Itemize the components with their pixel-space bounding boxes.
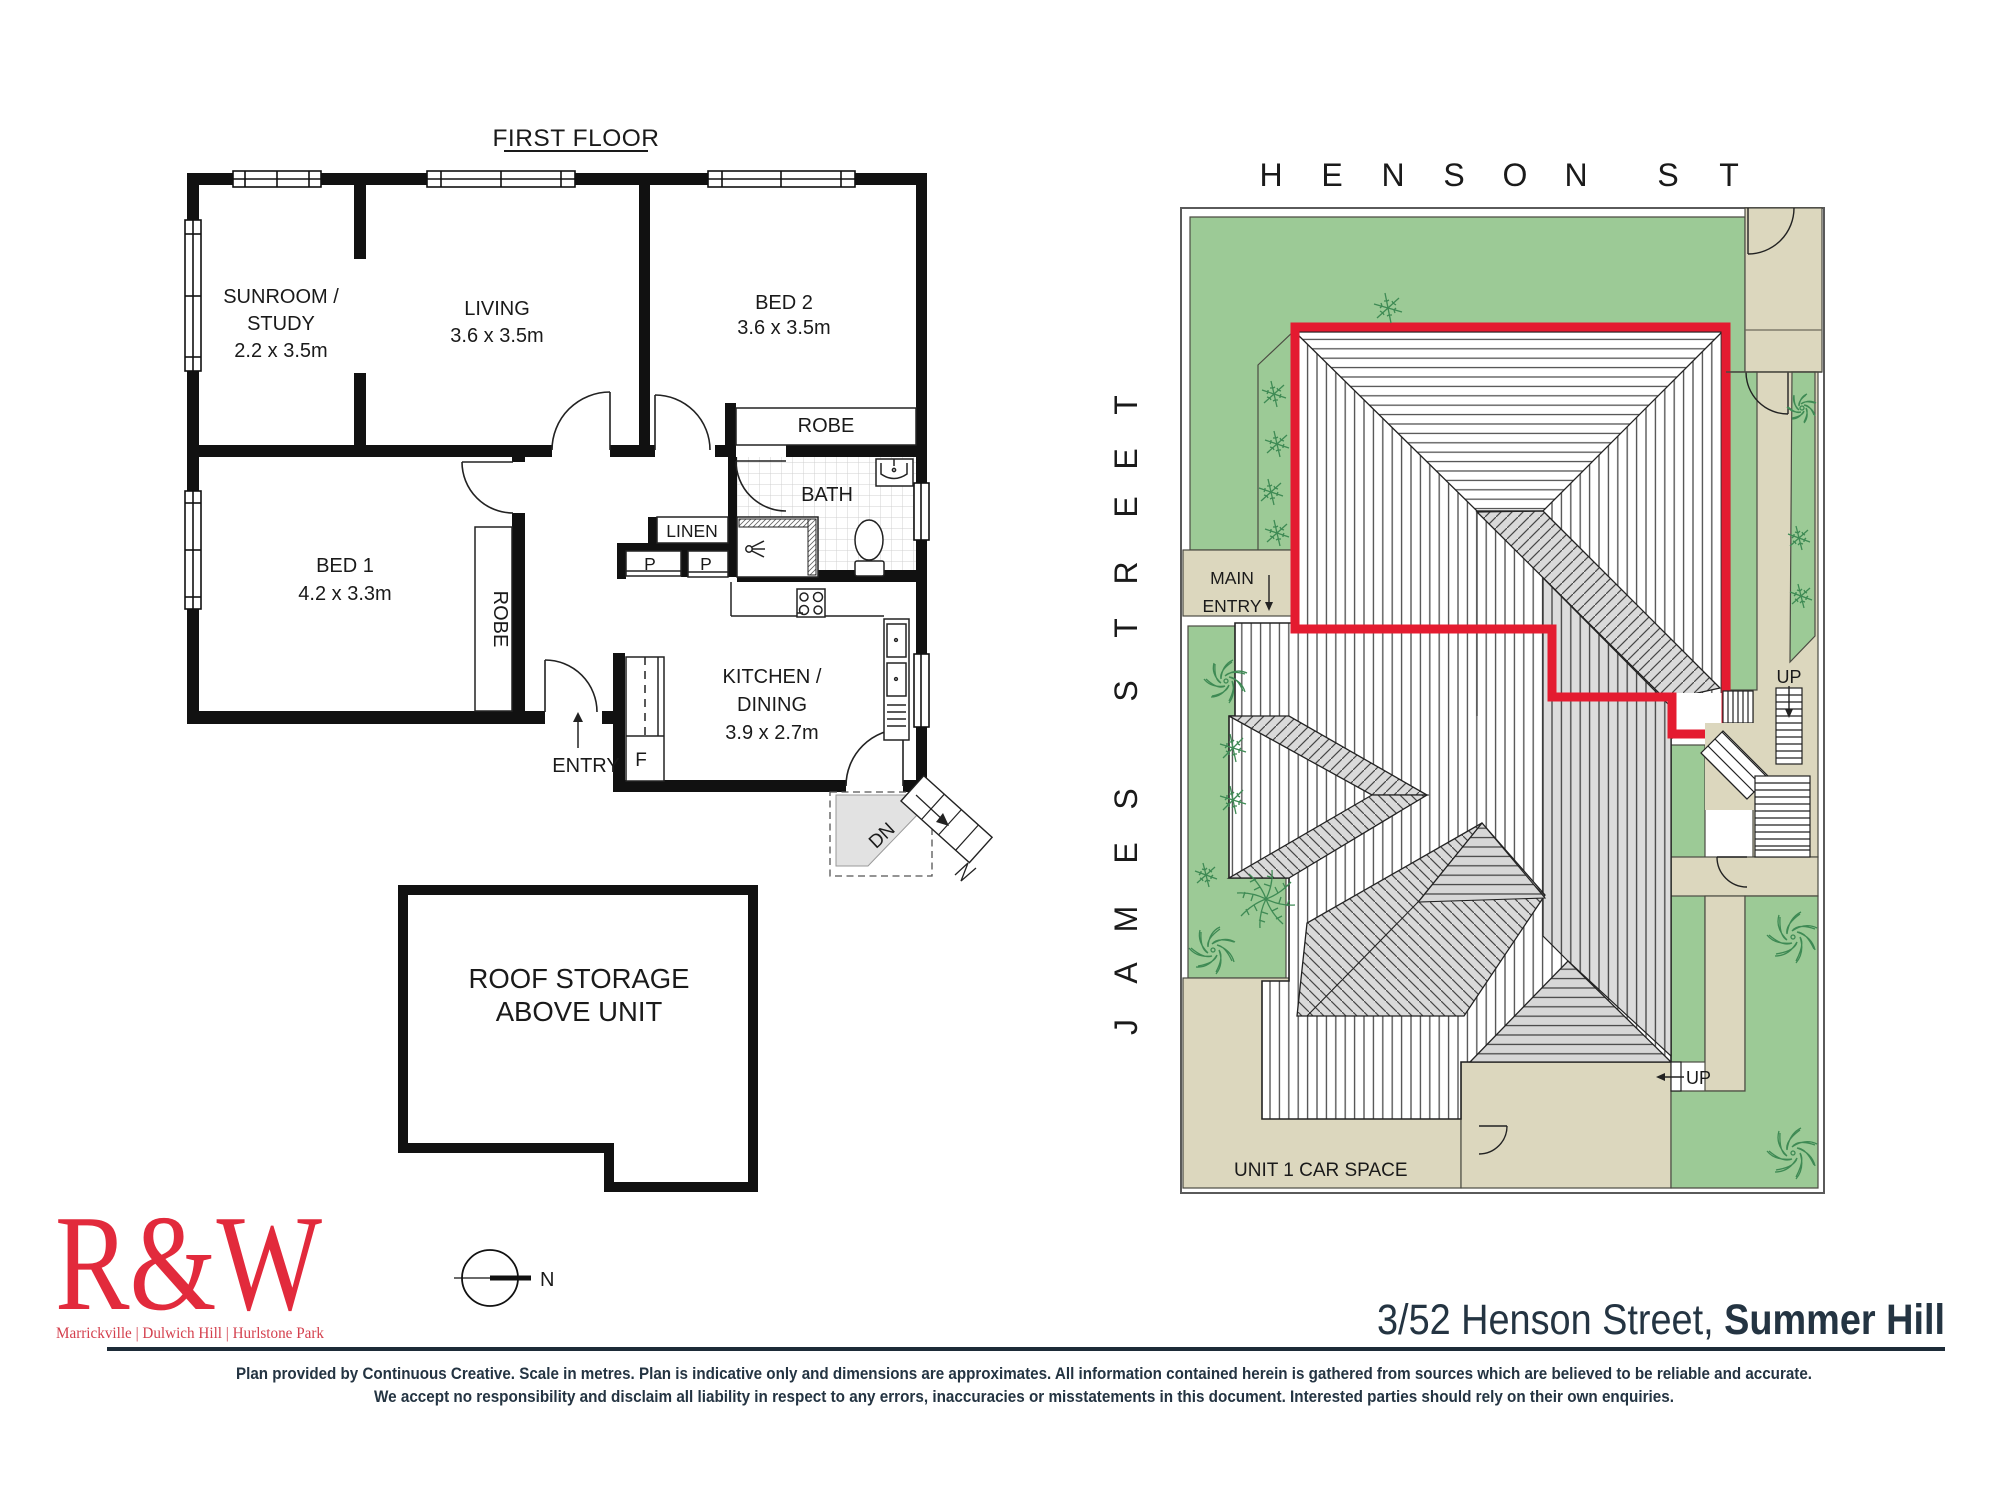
svg-text:STUDY: STUDY bbox=[247, 313, 315, 335]
svg-text:ENTRY: ENTRY bbox=[1203, 596, 1262, 616]
svg-text:3.6 x 3.5m: 3.6 x 3.5m bbox=[737, 317, 830, 339]
svg-text:S: S bbox=[1108, 680, 1144, 701]
svg-text:ENTRY: ENTRY bbox=[552, 755, 619, 777]
svg-text:We accept no responsibility an: We accept no responsibility and disclaim… bbox=[374, 1388, 1674, 1406]
svg-text:FIRST FLOOR: FIRST FLOOR bbox=[492, 125, 659, 152]
svg-text:A: A bbox=[1108, 962, 1144, 984]
svg-text:ROOF STORAGE: ROOF STORAGE bbox=[468, 963, 689, 994]
svg-text:E: E bbox=[1108, 448, 1144, 469]
svg-text:3.6 x 3.5m: 3.6 x 3.5m bbox=[450, 325, 543, 347]
svg-text:LIVING: LIVING bbox=[464, 298, 530, 320]
svg-text:UP: UP bbox=[1776, 667, 1801, 687]
svg-text:F: F bbox=[635, 750, 647, 771]
svg-text:4.2 x 3.3m: 4.2 x 3.3m bbox=[298, 583, 391, 605]
svg-text:R&W: R&W bbox=[55, 1187, 323, 1339]
svg-text:Plan provided by Continuous Cr: Plan provided by Continuous Creative. Sc… bbox=[236, 1365, 1812, 1383]
svg-text:N: N bbox=[540, 1269, 554, 1291]
svg-text:ABOVE UNIT: ABOVE UNIT bbox=[496, 996, 663, 1027]
svg-text:J: J bbox=[1108, 1019, 1144, 1035]
svg-text:KITCHEN /: KITCHEN / bbox=[723, 666, 822, 688]
svg-text:BED 2: BED 2 bbox=[755, 292, 813, 314]
svg-text:UNIT 1 CAR SPACE: UNIT 1 CAR SPACE bbox=[1234, 1160, 1408, 1181]
svg-text:S: S bbox=[1657, 157, 1678, 193]
svg-text:E: E bbox=[1108, 842, 1144, 863]
svg-text:DINING: DINING bbox=[737, 694, 807, 716]
svg-text:T: T bbox=[1108, 395, 1144, 415]
svg-text:ROBE: ROBE bbox=[798, 415, 855, 437]
svg-text:E: E bbox=[1321, 157, 1342, 193]
svg-text:N: N bbox=[1381, 157, 1404, 193]
svg-text:E: E bbox=[1108, 496, 1144, 517]
svg-text:N: N bbox=[1564, 157, 1587, 193]
svg-text:2.2 x 3.5m: 2.2 x 3.5m bbox=[234, 340, 327, 362]
svg-text:LINEN: LINEN bbox=[666, 521, 718, 541]
svg-text:S: S bbox=[1108, 788, 1144, 809]
svg-text:3.9 x 2.7m: 3.9 x 2.7m bbox=[725, 722, 818, 744]
svg-text:T: T bbox=[1108, 618, 1144, 638]
svg-text:UP: UP bbox=[1686, 1068, 1711, 1088]
svg-text:SUNROOM /: SUNROOM / bbox=[223, 286, 339, 308]
svg-text:T: T bbox=[1719, 157, 1739, 193]
svg-text:O: O bbox=[1503, 157, 1528, 193]
svg-text:MAIN: MAIN bbox=[1210, 568, 1254, 588]
svg-text:R: R bbox=[1108, 561, 1144, 584]
svg-text:P: P bbox=[700, 554, 712, 574]
svg-text:H: H bbox=[1259, 157, 1282, 193]
svg-text:BED 1: BED 1 bbox=[316, 555, 374, 577]
svg-text:M: M bbox=[1108, 906, 1144, 933]
svg-text:BATH: BATH bbox=[801, 484, 853, 506]
svg-text:3/52 Henson Street, Summer Hil: 3/52 Henson Street, Summer Hill bbox=[1377, 1296, 1945, 1344]
svg-text:S: S bbox=[1443, 157, 1464, 193]
svg-text:P: P bbox=[644, 554, 656, 574]
svg-text:ROBE: ROBE bbox=[489, 591, 511, 648]
svg-text:Marrickville | Dulwich Hill |: Marrickville | Dulwich Hill | Hurlstone … bbox=[56, 1325, 324, 1342]
